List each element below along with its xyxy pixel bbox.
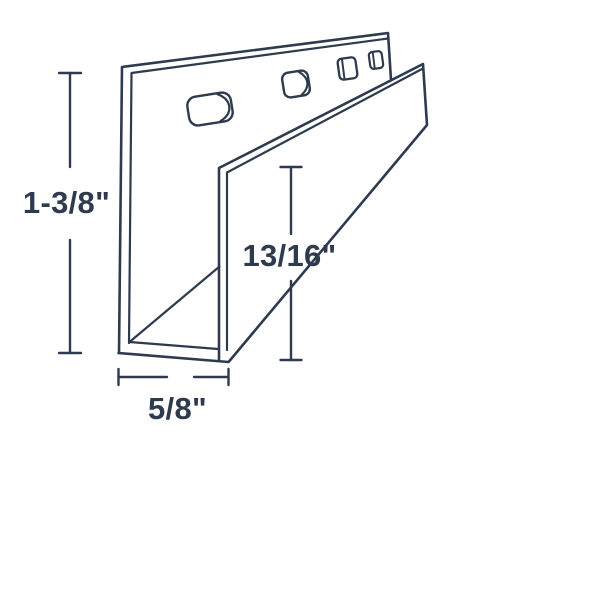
nail-slot-3-outline [337, 57, 358, 80]
channel-floor-back-junction [130, 267, 220, 343]
front-panel-thickness-line [227, 69, 422, 350]
back-panel-thickness-line [129, 39, 388, 344]
nail-slot-1 [186, 91, 234, 127]
channel-floor-inner-edge [130, 342, 219, 349]
nail-slot-3 [337, 57, 358, 80]
channel-width-label: 5/8" [148, 391, 207, 426]
nail-slot-2 [281, 70, 311, 99]
diagram-canvas: 1-3/8" 13/16" 5/8" [0, 0, 600, 600]
nail-slot-1-outline [186, 91, 234, 127]
opening-height-label: 13/16" [242, 238, 336, 273]
nail-slot-4 [368, 51, 383, 70]
channel-floor-outer-edge [119, 353, 229, 362]
back-panel-outline [119, 33, 391, 353]
nail-slot-4-thickness-line [373, 53, 375, 67]
nail-slot-4-outline [368, 51, 383, 70]
front-panel-outline [219, 64, 427, 362]
profile-linework [59, 33, 427, 385]
nail-slot-3-thickness-line [342, 60, 345, 78]
channel-width-dimension [119, 369, 229, 385]
j-channel-profile-drawing: 1-3/8" 13/16" 5/8" [0, 0, 600, 600]
overall-height-label: 1-3/8" [23, 185, 110, 220]
